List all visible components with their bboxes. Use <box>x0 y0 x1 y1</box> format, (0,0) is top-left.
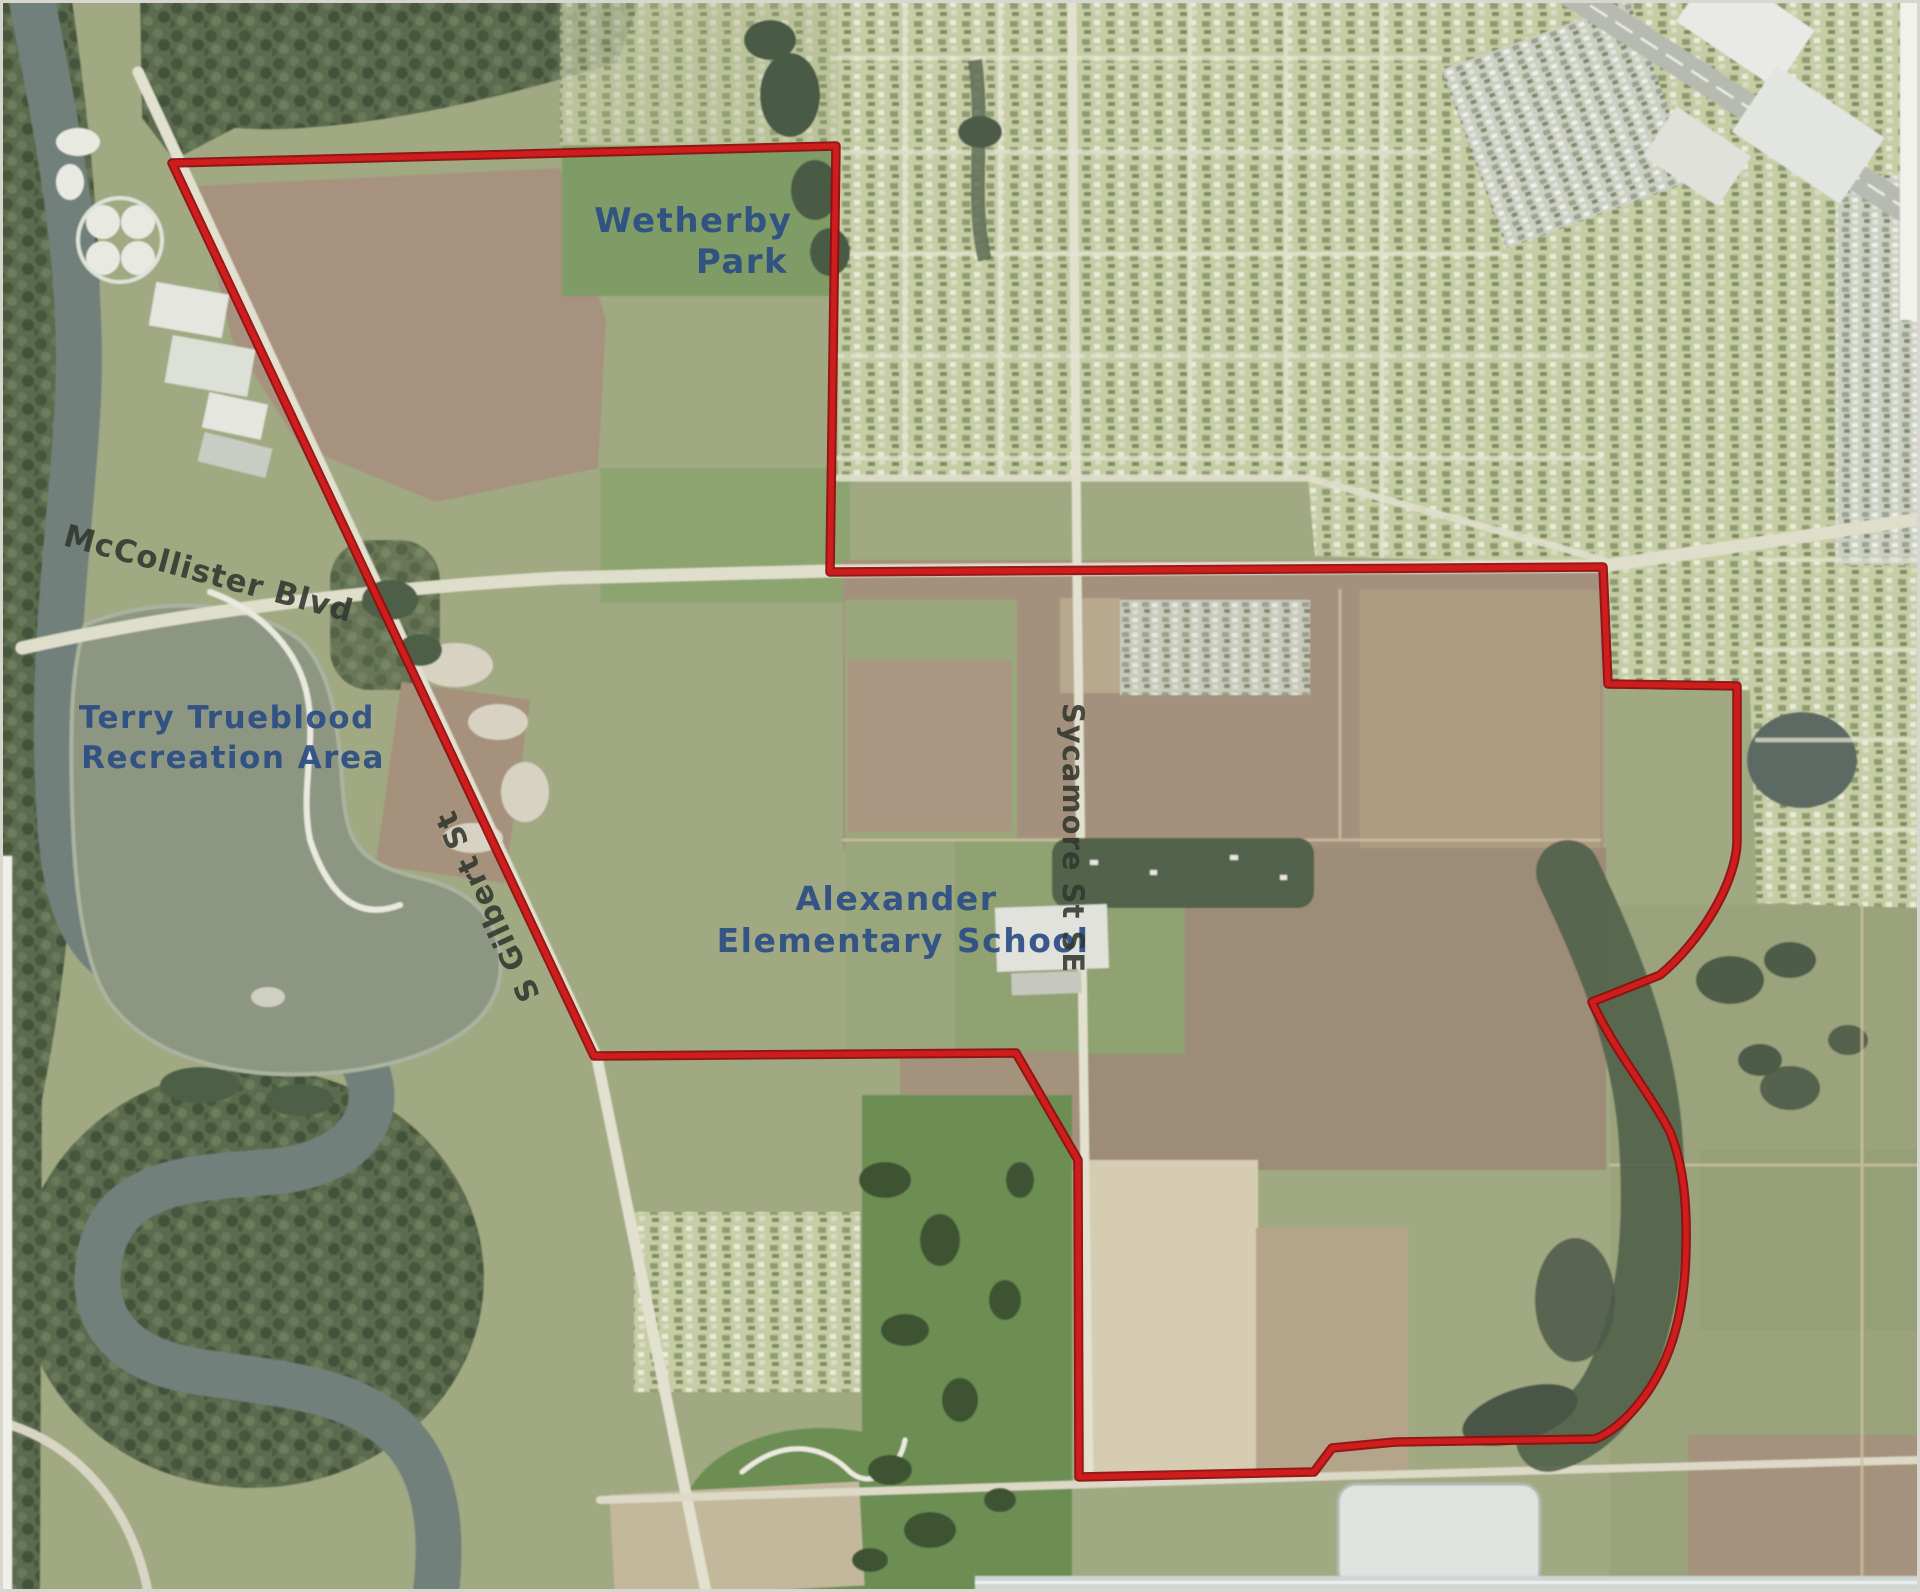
new-subdivision-gray <box>1120 600 1310 695</box>
terrain-layer <box>0 0 1920 1592</box>
terry-trueblood-label-line1: Terry Trueblood <box>79 700 375 736</box>
pale-cream-strip <box>1080 1160 1258 1478</box>
sand-pit-2 <box>468 704 528 740</box>
tree-row-mid <box>1052 838 1314 908</box>
wetherby-park-label-line1: Wetherby <box>594 201 792 241</box>
tan-patch-west-sycamore <box>848 660 1012 832</box>
residential-creek <box>975 60 985 260</box>
se-olive-patch <box>1700 1150 1920 1330</box>
alexander-school-label-line2: Elementary School <box>717 921 1090 960</box>
bottom-highway-line <box>975 1581 1920 1584</box>
tan-field-bottom <box>1256 1228 1408 1475</box>
pond-east <box>1747 712 1857 808</box>
alexander-school-label-line1: Alexander <box>795 879 997 918</box>
lake-island <box>251 987 285 1007</box>
treatment-lagoon <box>1338 1484 1540 1588</box>
aerial-map: Wetherby Park McCollister Blvd Terry Tru… <box>0 0 1920 1592</box>
mid-brown-field-light <box>1360 590 1600 848</box>
aerial-map-screenshot: Wetherby Park McCollister Blvd Terry Tru… <box>0 0 1920 1592</box>
sw-mobile-grid <box>634 1212 860 1392</box>
sand-pit-3 <box>501 762 549 822</box>
new-subdivision-tan <box>1060 598 1120 693</box>
green-band-east-gilbert <box>600 468 850 603</box>
terry-trueblood-label-line2: Recreation Area <box>81 740 385 776</box>
wetherby-park-label-line2: Park <box>696 242 788 282</box>
sycamore-st-label: Sycamore St SE <box>1056 703 1090 973</box>
